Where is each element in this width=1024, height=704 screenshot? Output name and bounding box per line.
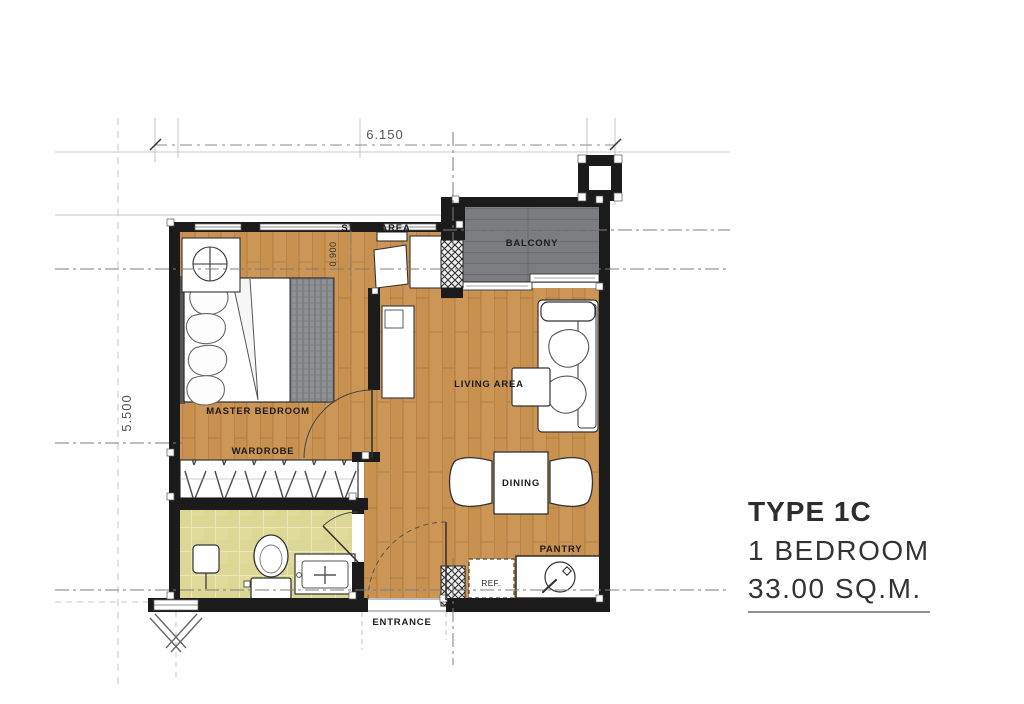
- label-entrance: ENTRANCE: [372, 617, 431, 628]
- wardrobe-unit: [180, 460, 358, 498]
- study-desk: [374, 232, 446, 288]
- floor-plan-page: 6.150 5.500: [0, 0, 1024, 704]
- label-dining: DINING: [502, 478, 540, 489]
- sofa-cushion: [547, 376, 586, 413]
- column-hatch-top: [441, 240, 463, 288]
- tv-cabinet: [382, 306, 414, 398]
- pantry-counter: [516, 556, 600, 598]
- dimension-top-value: 6.150: [366, 127, 404, 142]
- label-balcony: BALCONY: [506, 238, 559, 249]
- dimension-left-value: 5.500: [119, 394, 134, 432]
- dining-chair-right: [550, 458, 593, 507]
- kitchen-sink: [545, 562, 575, 592]
- label-wardrobe: WARDROBE: [232, 446, 295, 457]
- bed-runner: [290, 278, 334, 402]
- label-ref: REF.: [482, 579, 501, 588]
- label-pantry: PANTRY: [540, 544, 583, 555]
- bed: [178, 276, 334, 405]
- vanity-sink: [295, 554, 355, 594]
- label-living-area: LIVING AREA: [454, 379, 524, 390]
- dimension-study-value: 0.900: [328, 241, 338, 266]
- entrance-opening: [368, 599, 446, 611]
- dimension-left: 5.500: [119, 394, 134, 432]
- unit-info: TYPE 1C 1 BEDROOM 33.00 SQ.M.: [748, 496, 948, 613]
- info-underline: [748, 611, 930, 613]
- sofa: [538, 300, 598, 432]
- corner-column: [578, 155, 622, 201]
- label-study-area: STUDY AREA: [341, 223, 410, 234]
- bedside-unit: [182, 238, 240, 292]
- unit-type: TYPE 1C: [748, 496, 948, 528]
- unit-bedrooms: 1 BEDROOM: [748, 535, 948, 567]
- dining-chair-left: [450, 458, 493, 507]
- label-master-bedroom: MASTER BEDROOM: [206, 406, 310, 417]
- unit-area: 33.00 SQ.M.: [748, 573, 948, 605]
- bathroom-louver-window: [154, 600, 198, 610]
- dimension-top: 6.150: [150, 127, 621, 150]
